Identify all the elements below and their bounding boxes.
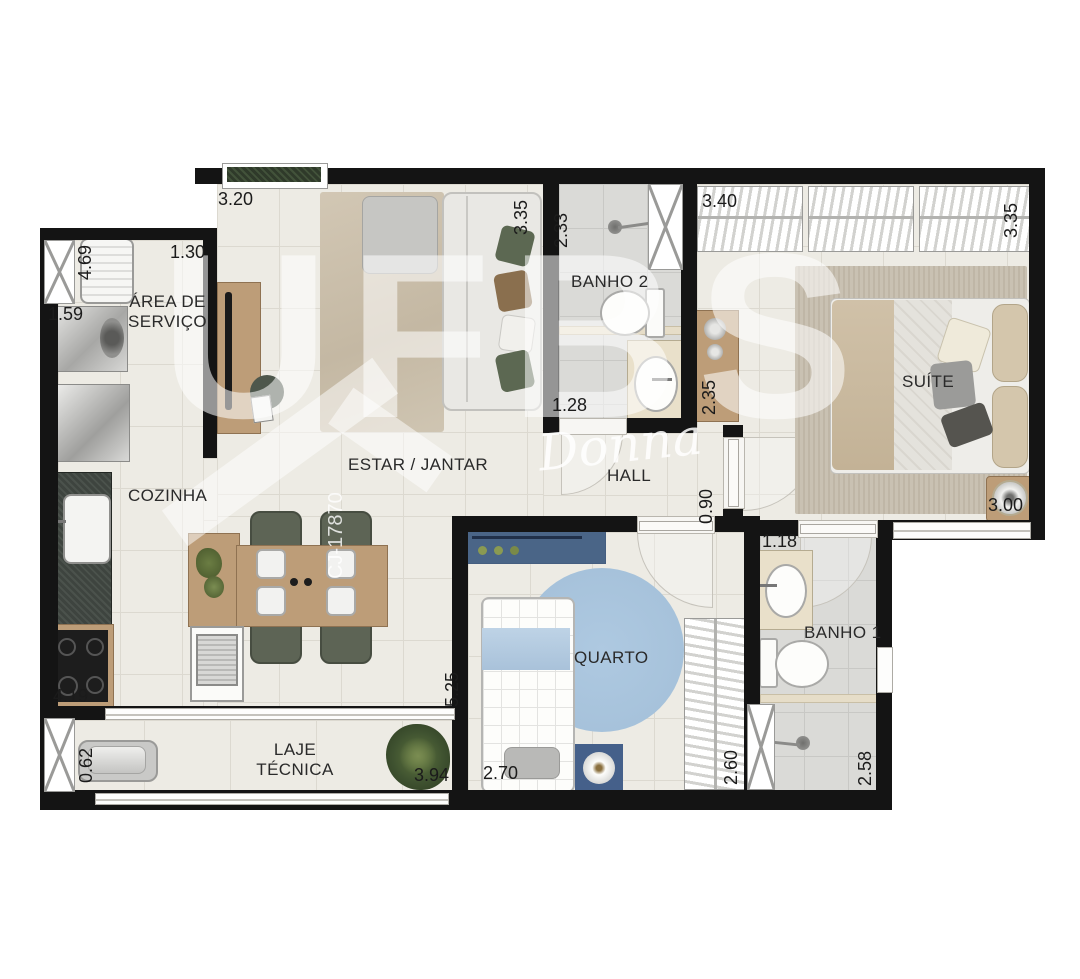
quarto-desk-decor [478,546,487,555]
window-banho1-right [877,647,893,693]
quarto-bed-blanket [482,628,570,670]
vanity-sink [634,356,678,412]
table-centerpiece [290,578,298,586]
tile-divider [760,694,878,703]
room-label-suite: SUÍTE [902,372,954,392]
door-leaf-suite [728,439,739,507]
suite-closet-section [808,186,914,252]
window-glass-line [96,799,448,801]
ottoman [362,196,438,274]
toilet-bowl [600,290,650,336]
room-label-laje-line1: LAJE [235,740,355,760]
measurement-banho2-left: 2.33 [552,213,570,248]
vanity-faucet [652,378,672,381]
place-setting [326,586,356,616]
measurement-cozinha-stove: 4.19 [53,687,88,705]
wall-cozinha-quarto [452,516,468,806]
room-label-area-servico-line2: SERVIÇO [128,312,207,332]
measurement-estar-top: 3.20 [218,190,253,208]
window-laje-top [105,708,455,720]
room-label-laje-line2: TÉCNICA [235,760,355,780]
room-label-cozinha: COZINHA [128,486,207,506]
wall-estar-banho2 [543,168,559,433]
place-setting [256,586,286,616]
stove-burner [58,638,76,656]
measurement-laje-left: 0.62 [77,748,95,783]
window-x-glyph [45,241,74,303]
sofa-pillow [493,269,533,312]
washing-machine-door [100,318,124,358]
window-glass-line [894,530,1030,532]
sideboard-plant [204,576,224,598]
room-label-area-servico-line1: ÁREA DE [128,292,207,312]
sofa-seat-line [466,196,468,402]
ac-condenser-inner [88,746,146,774]
tv [225,292,232,410]
place-setting [256,549,286,579]
room-label-laje-tecnica: LAJE TÉCNICA [235,740,355,780]
measurement-cozinha-right: 5.25 [443,672,461,707]
planter-box [227,167,321,182]
magazine [250,395,273,424]
room-label-quarto: QUARTO [574,648,649,668]
measurement-banho1-bottom-right: 2.58 [856,751,874,786]
kitchen-sink [63,494,111,564]
toilet-bowl [775,640,829,688]
microwave [196,634,238,686]
window-glass-line [106,714,454,716]
wall-right-suite [1029,168,1045,540]
wall-servico-estar [203,228,217,458]
window-x-glyph [748,705,774,789]
measurement-servico-top: 1.30 [170,243,205,261]
shaft-banho2 [648,184,683,270]
window-banho1-shower [747,704,775,790]
window-laje-left [44,718,75,792]
room-label-hall: HALL [607,466,651,486]
quarto-desk-decor [510,546,519,555]
suite-pillow-bolster [992,304,1028,382]
measurement-estar-right: 3.35 [512,200,530,235]
floor-plan: UFBS Donna CJ-17870 ÁREA DE SERVIÇO COZI… [0,0,1080,979]
dryer-machine [52,384,130,462]
table-centerpiece [304,578,312,586]
room-label-area-servico: ÁREA DE SERVIÇO [128,292,207,332]
vanity-sink [765,564,807,618]
room-label-banho1: BANHO 1 [804,623,881,643]
stove-burner [86,676,104,694]
door-opening-banho2 [559,418,627,435]
measurement-banho1-top: 1.18 [762,532,797,550]
vanity-faucet [759,584,777,587]
place-setting [326,549,356,579]
sofa-pillow [498,314,537,354]
quarto-desk-shelf-line [472,536,582,539]
measurement-servico-left-wall: 4.69 [76,245,94,280]
measurement-quarto-bottom: 2.70 [483,764,518,782]
window-servico-left [44,240,75,304]
wall-bottom-right [452,790,892,810]
window-suite-bottom [893,522,1031,539]
measurement-suite-dresser: 2.35 [700,380,718,415]
closet-rod [698,216,802,219]
closet-rod [809,216,913,219]
quarto-desk-decor [494,546,503,555]
room-label-estar-jantar: ESTAR / JANTAR [348,455,488,475]
dresser-decor [707,344,723,360]
measurement-hall-right: 0.90 [697,489,715,524]
measurement-suite-bottom: 3.00 [988,496,1023,514]
stove-burner [86,638,104,656]
wall-servico-top [40,228,203,240]
room-label-banho2: BANHO 2 [571,272,648,292]
measurement-quarto-closet-right: 2.60 [722,750,740,785]
window-x-glyph [45,719,74,791]
window-x-glyph [649,185,682,269]
measurement-laje-bottom-right: 3.94 [414,766,449,784]
window-laje-bottom [95,793,449,805]
sideboard-plant [196,548,222,578]
door-leaf-banho1 [800,524,876,534]
wall-banho2-suite [681,168,697,433]
suite-pillow-bolster [992,386,1028,468]
measurement-servico-side: 1.59 [48,305,83,323]
measurement-banho2-bottom: 1.28 [552,396,587,414]
quarto-stool-seat [583,752,615,784]
suite-bed-throw [832,300,894,470]
measurement-suite-closet-top: 3.40 [702,192,737,210]
measurement-suite-right: 3.35 [1002,203,1020,238]
dresser-decor [704,318,726,340]
closet-rod [714,619,717,789]
